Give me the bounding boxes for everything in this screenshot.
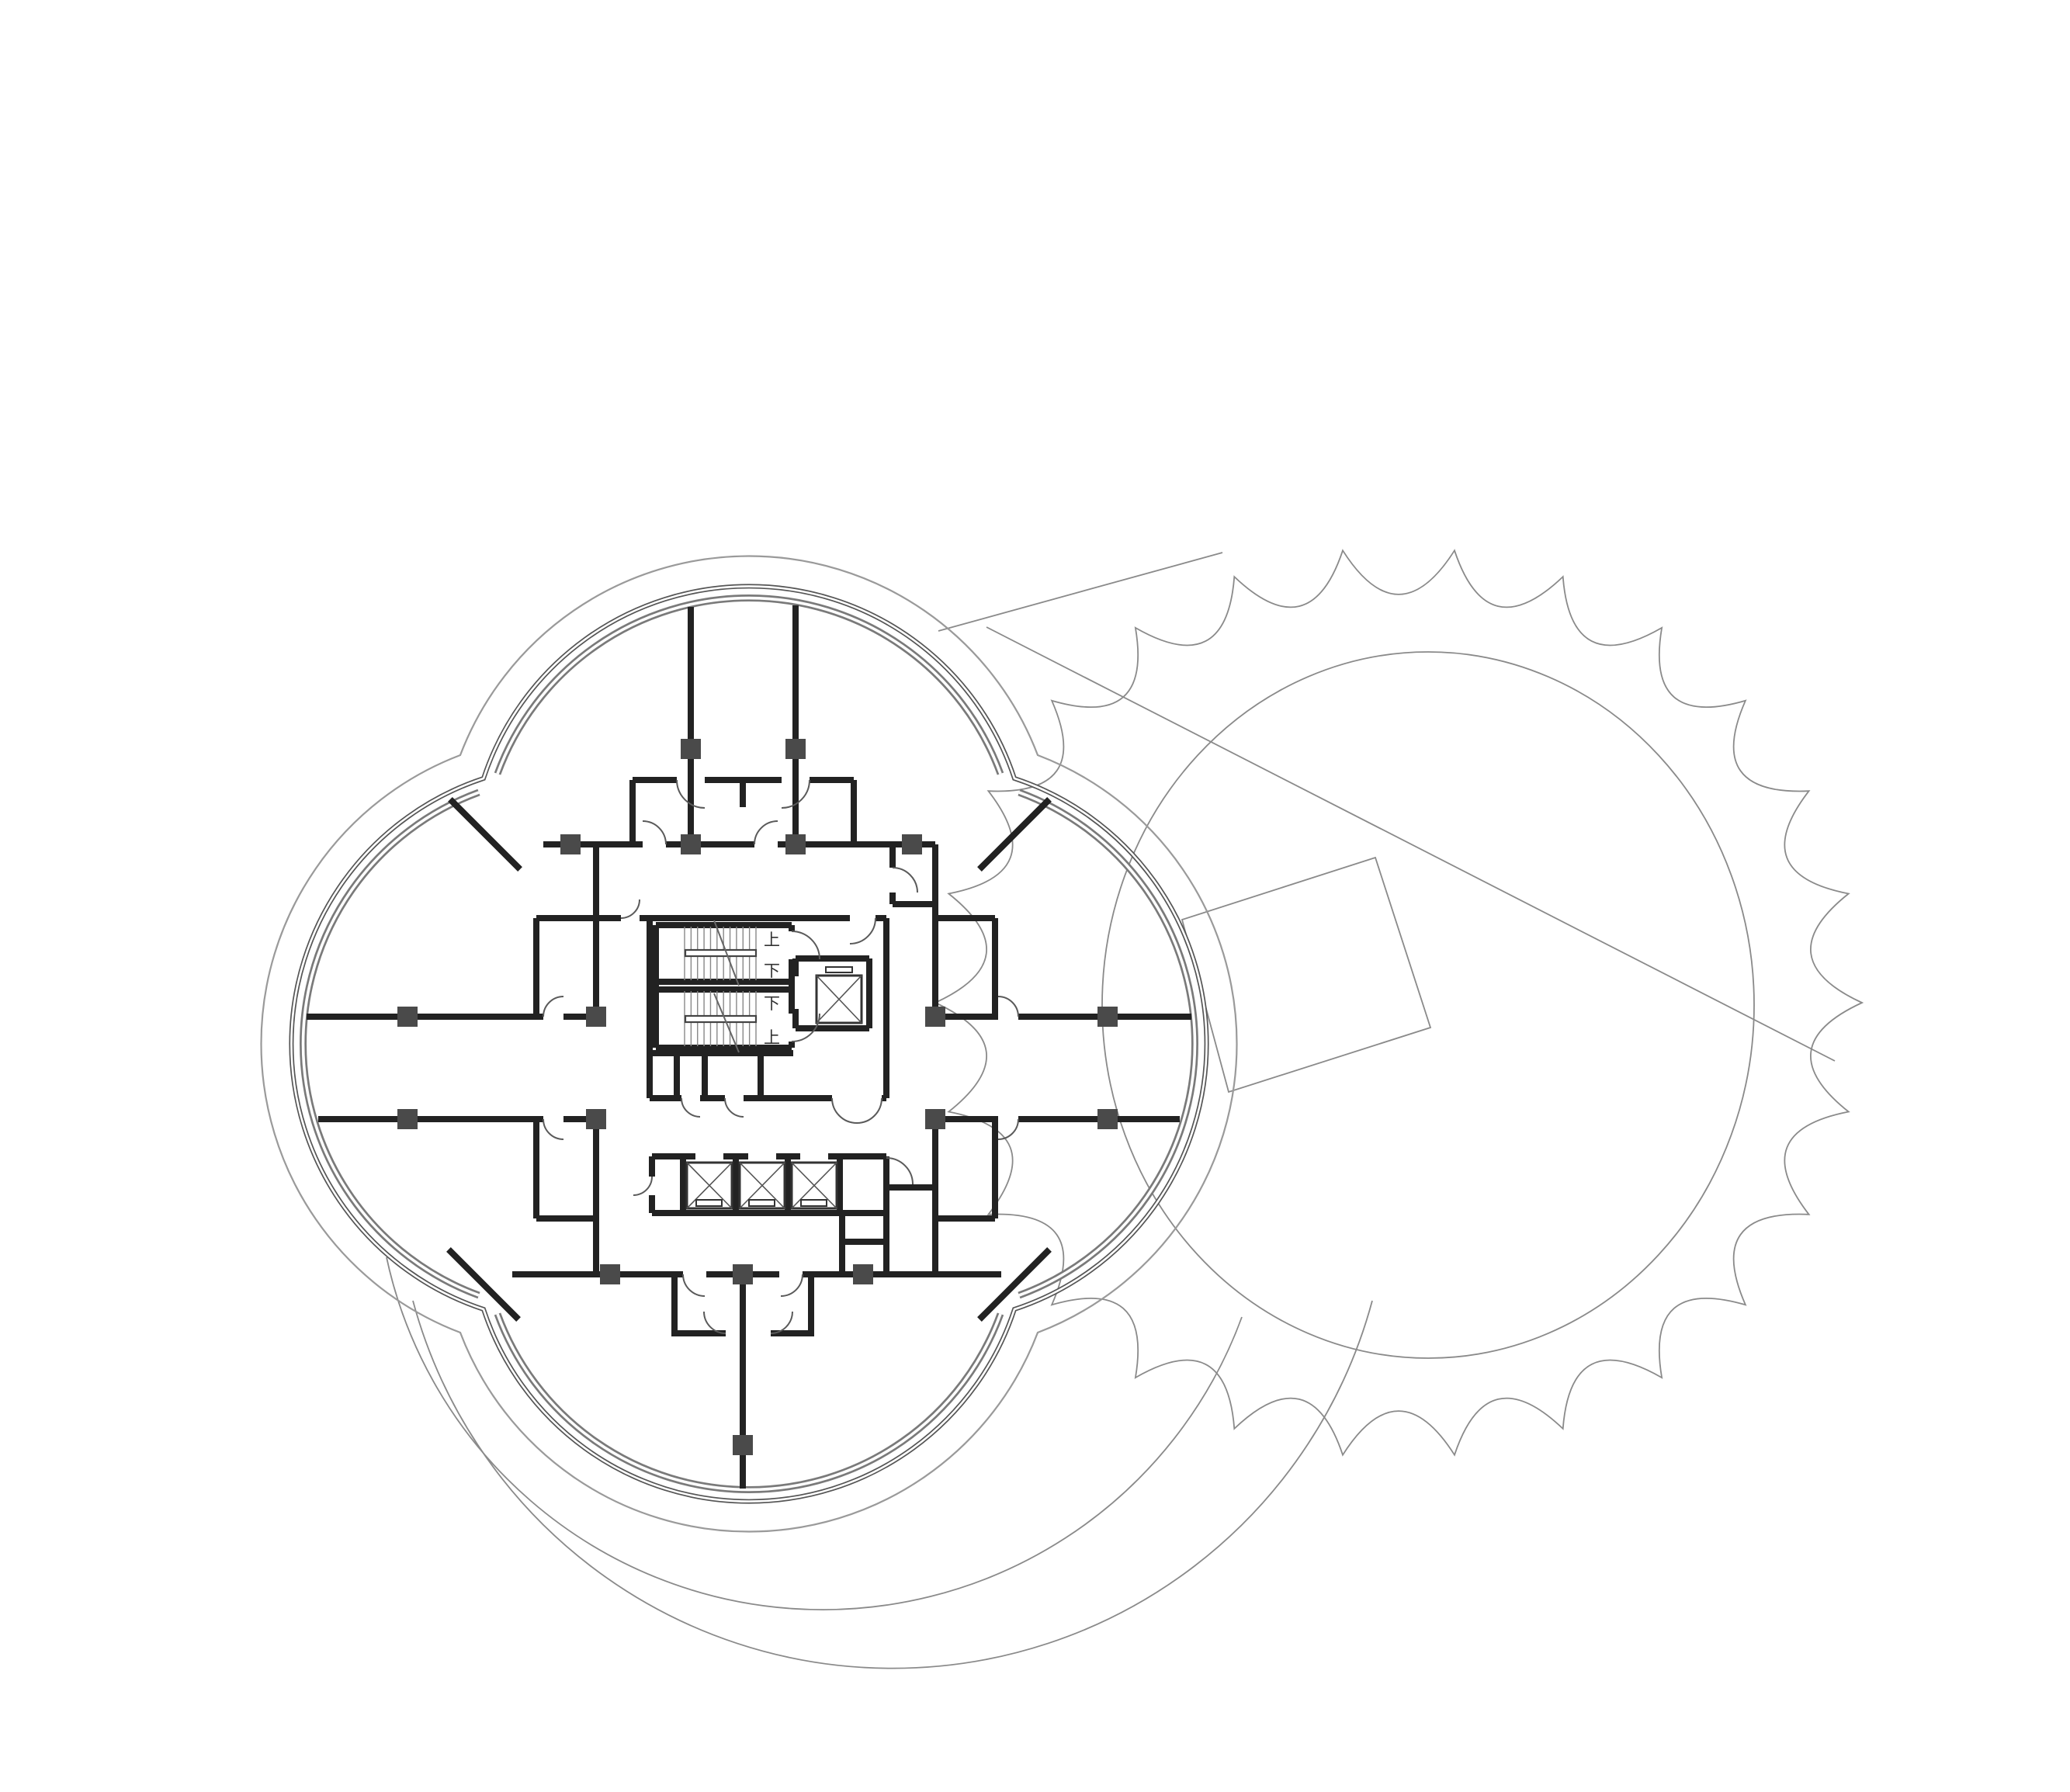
context-linework: [387, 550, 1862, 1668]
context-ellipse: [1102, 652, 1754, 1358]
stair-a-down-label: 下: [764, 962, 780, 980]
interior-walls: [307, 605, 1191, 1489]
stair-b-handrail: [685, 1016, 756, 1022]
stair-b-down-label: 下: [764, 994, 780, 1013]
floor-plan-canvas: 上 下 下 上: [0, 0, 2070, 1792]
context-tangent-line: [938, 553, 1222, 631]
context-large-arc-outer: [413, 1301, 1372, 1669]
stair-a-up-label: 上: [764, 931, 780, 949]
context-chord-line: [986, 627, 1835, 1061]
drawing-sheet: 上 下 下 上: [0, 0, 2070, 1792]
context-scalloped-outline: [935, 550, 1862, 1454]
elevator-bank: [687, 1163, 837, 1208]
door-swings: [543, 780, 1018, 1333]
stair-b: [685, 991, 756, 1052]
stair-a: [685, 920, 756, 986]
stair-b-up-label: 上: [764, 1028, 780, 1047]
elevator-single: [817, 967, 862, 1023]
context-rotated-rectangle: [1182, 858, 1430, 1092]
stair-a-handrail: [685, 950, 756, 956]
